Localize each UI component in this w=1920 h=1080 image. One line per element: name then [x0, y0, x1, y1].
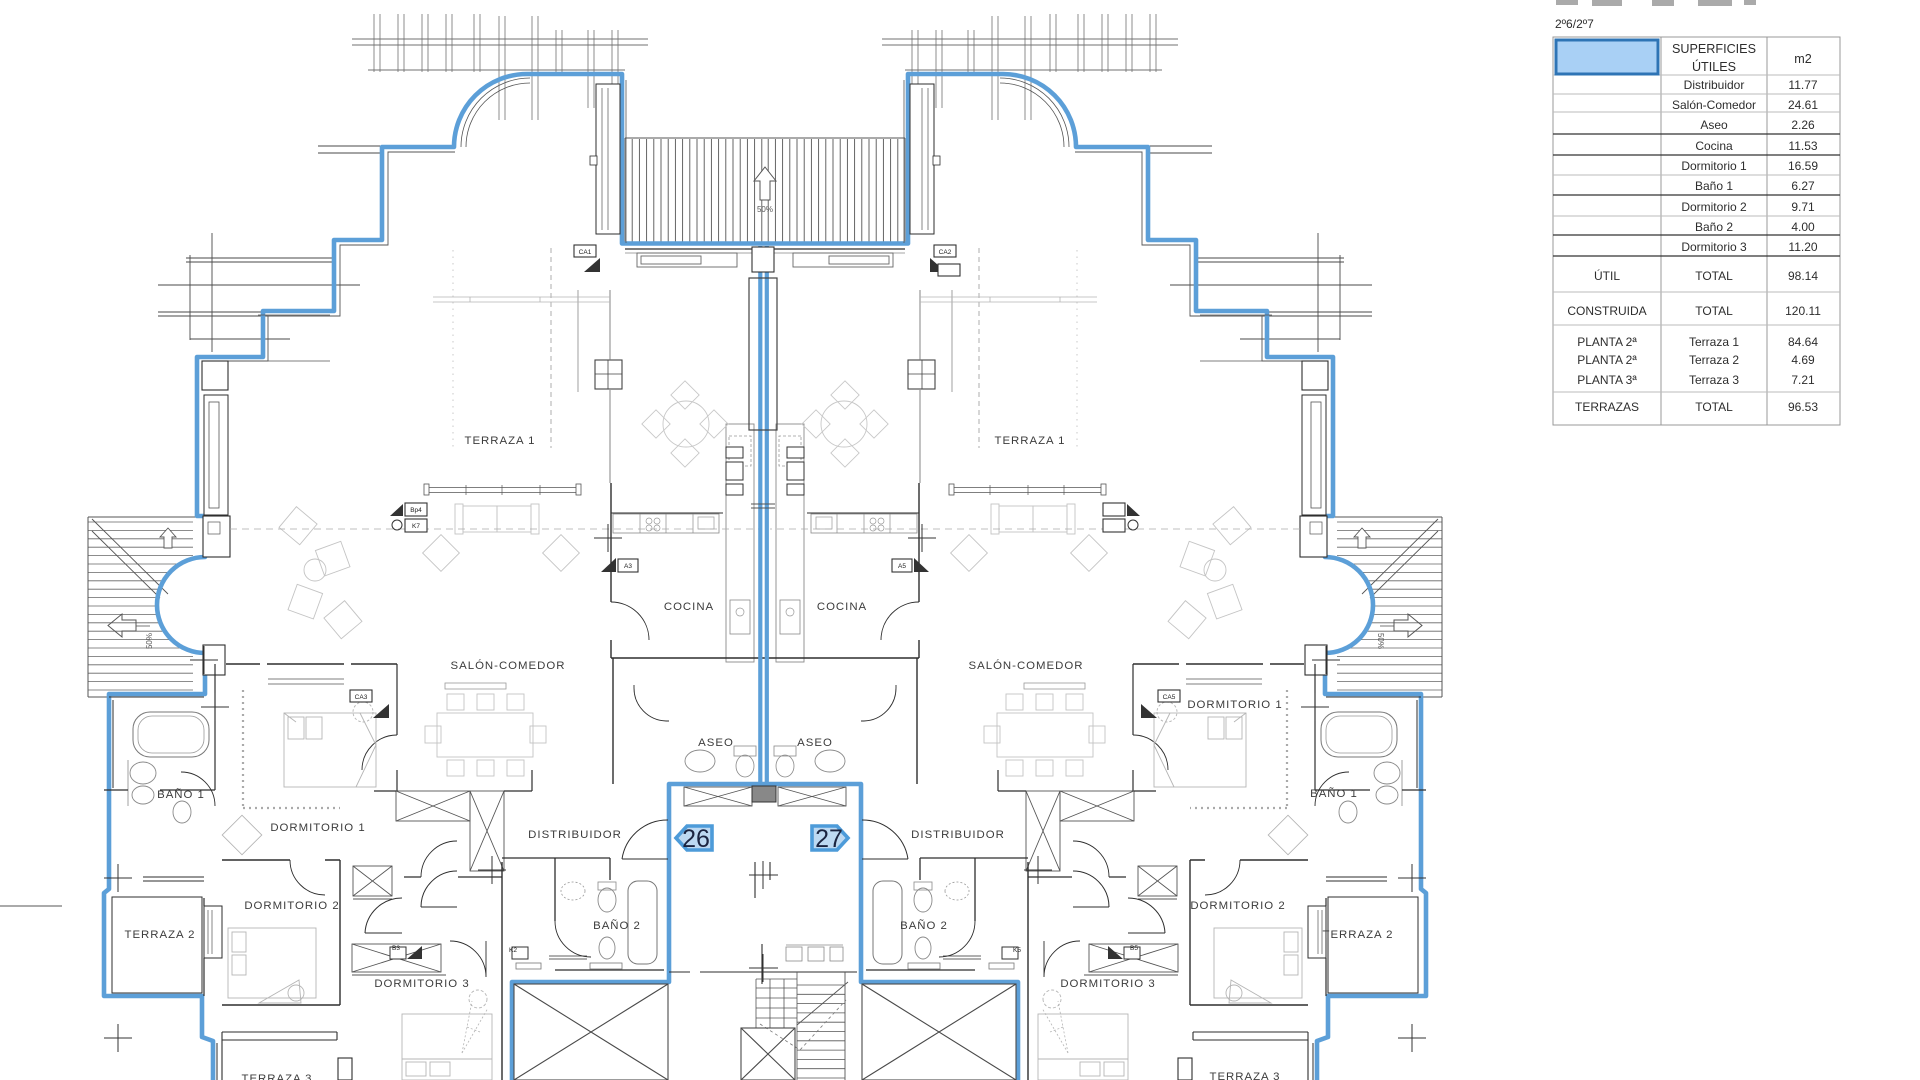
svg-text:ÚTIL: ÚTIL — [1594, 268, 1620, 283]
svg-text:K7: K7 — [412, 523, 420, 530]
svg-text:ASEO: ASEO — [797, 737, 833, 749]
svg-text:PLANTA 3ª: PLANTA 3ª — [1577, 373, 1637, 387]
svg-text:K5: K5 — [1013, 947, 1021, 954]
svg-text:SALÓN-COMEDOR: SALÓN-COMEDOR — [451, 659, 566, 672]
svg-text:120.11: 120.11 — [1785, 304, 1821, 318]
svg-text:Terraza 3: Terraza 3 — [1689, 373, 1739, 387]
svg-text:Baño 2: Baño 2 — [1695, 220, 1733, 234]
svg-text:Aseo: Aseo — [1700, 118, 1728, 132]
svg-text:Dormitorio 1: Dormitorio 1 — [1681, 159, 1747, 173]
svg-text:4.69: 4.69 — [1791, 353, 1815, 367]
svg-text:11.53: 11.53 — [1788, 139, 1817, 153]
svg-text:DORMITORIO 3: DORMITORIO 3 — [1060, 978, 1155, 990]
svg-text:PLANTA 2ª: PLANTA 2ª — [1577, 335, 1637, 349]
svg-text:4.00: 4.00 — [1791, 220, 1815, 234]
svg-text:Baño 1: Baño 1 — [1695, 179, 1733, 193]
svg-text:TERRAZA 3: TERRAZA 3 — [241, 1073, 312, 1080]
svg-text:TOTAL: TOTAL — [1695, 400, 1733, 414]
svg-text:TERRAZA 1: TERRAZA 1 — [994, 435, 1065, 447]
svg-text:50%: 50% — [145, 633, 154, 649]
svg-text:DISTRIBUIDOR: DISTRIBUIDOR — [911, 829, 1005, 841]
svg-text:Bp4: Bp4 — [410, 507, 422, 514]
svg-text:27: 27 — [815, 825, 843, 853]
svg-text:11.77: 11.77 — [1788, 78, 1817, 92]
svg-text:TERRAZAS: TERRAZAS — [1575, 400, 1639, 414]
svg-text:7.21: 7.21 — [1791, 373, 1815, 387]
svg-text:DISTRIBUIDOR: DISTRIBUIDOR — [528, 829, 622, 841]
svg-text:Terraza 1: Terraza 1 — [1689, 335, 1739, 349]
svg-text:DORMITORIO 2: DORMITORIO 2 — [1190, 900, 1285, 912]
svg-text:Distribuidor: Distribuidor — [1684, 78, 1745, 92]
svg-text:CONSTRUIDA: CONSTRUIDA — [1567, 304, 1646, 318]
svg-text:ASEO: ASEO — [698, 737, 734, 749]
svg-text:2º6/2º7: 2º6/2º7 — [1555, 17, 1594, 31]
svg-text:96.53: 96.53 — [1788, 400, 1818, 414]
svg-text:B3: B3 — [392, 945, 400, 952]
svg-text:DORMITORIO 2: DORMITORIO 2 — [244, 900, 339, 912]
svg-text:COCINA: COCINA — [664, 601, 714, 613]
svg-text:DORMITORIO 3: DORMITORIO 3 — [374, 978, 469, 990]
svg-text:84.64: 84.64 — [1788, 335, 1818, 349]
svg-text:SALÓN-COMEDOR: SALÓN-COMEDOR — [969, 659, 1084, 672]
svg-text:DORMITORIO 1: DORMITORIO 1 — [1187, 699, 1282, 711]
svg-text:Terraza 2: Terraza 2 — [1689, 353, 1739, 367]
svg-text:11.20: 11.20 — [1788, 240, 1817, 254]
svg-text:CA3: CA3 — [355, 694, 368, 701]
svg-text:PLANTA 2ª: PLANTA 2ª — [1577, 353, 1637, 367]
svg-text:SUPERFICIES: SUPERFICIES — [1672, 42, 1756, 56]
svg-text:CA1: CA1 — [579, 249, 592, 256]
svg-text:TOTAL: TOTAL — [1695, 304, 1733, 318]
svg-text:TERRAZA 2: TERRAZA 2 — [124, 929, 195, 941]
svg-text:26: 26 — [682, 825, 710, 853]
svg-text:Salón-Comedor: Salón-Comedor — [1672, 98, 1756, 112]
svg-text:BAÑO 2: BAÑO 2 — [593, 919, 641, 932]
svg-text:A5: A5 — [898, 563, 906, 570]
svg-text:K2: K2 — [509, 947, 517, 954]
svg-text:24.61: 24.61 — [1788, 98, 1818, 112]
svg-text:BAÑO 1: BAÑO 1 — [1310, 787, 1358, 800]
svg-text:DORMITORIO 1: DORMITORIO 1 — [270, 822, 365, 834]
svg-text:Dormitorio 3: Dormitorio 3 — [1681, 240, 1747, 254]
svg-text:6.27: 6.27 — [1791, 179, 1815, 193]
svg-text:Cocina: Cocina — [1695, 139, 1733, 153]
svg-text:CA2: CA2 — [939, 249, 952, 256]
svg-text:9.71: 9.71 — [1791, 200, 1815, 214]
svg-text:CA5: CA5 — [1163, 694, 1176, 701]
svg-text:2.26: 2.26 — [1791, 118, 1815, 132]
svg-text:TOTAL: TOTAL — [1695, 269, 1733, 283]
svg-text:TERRAZA 2: TERRAZA 2 — [1322, 929, 1393, 941]
svg-text:COCINA: COCINA — [817, 601, 867, 613]
svg-text:50%: 50% — [757, 205, 773, 214]
svg-text:BAÑO 2: BAÑO 2 — [900, 919, 948, 932]
svg-text:A3: A3 — [624, 563, 632, 570]
svg-text:16.59: 16.59 — [1788, 159, 1818, 173]
svg-text:98.14: 98.14 — [1788, 269, 1818, 283]
svg-text:ÚTILES: ÚTILES — [1692, 59, 1736, 74]
svg-text:TERRAZA 3: TERRAZA 3 — [1209, 1071, 1280, 1080]
svg-text:TERRAZA 1: TERRAZA 1 — [464, 435, 535, 447]
svg-text:B5: B5 — [1130, 945, 1138, 952]
svg-text:50%: 50% — [1376, 633, 1385, 649]
svg-text:m2: m2 — [1794, 52, 1812, 66]
svg-text:BAÑO 1: BAÑO 1 — [157, 788, 205, 801]
svg-text:Dormitorio 2: Dormitorio 2 — [1681, 200, 1747, 214]
